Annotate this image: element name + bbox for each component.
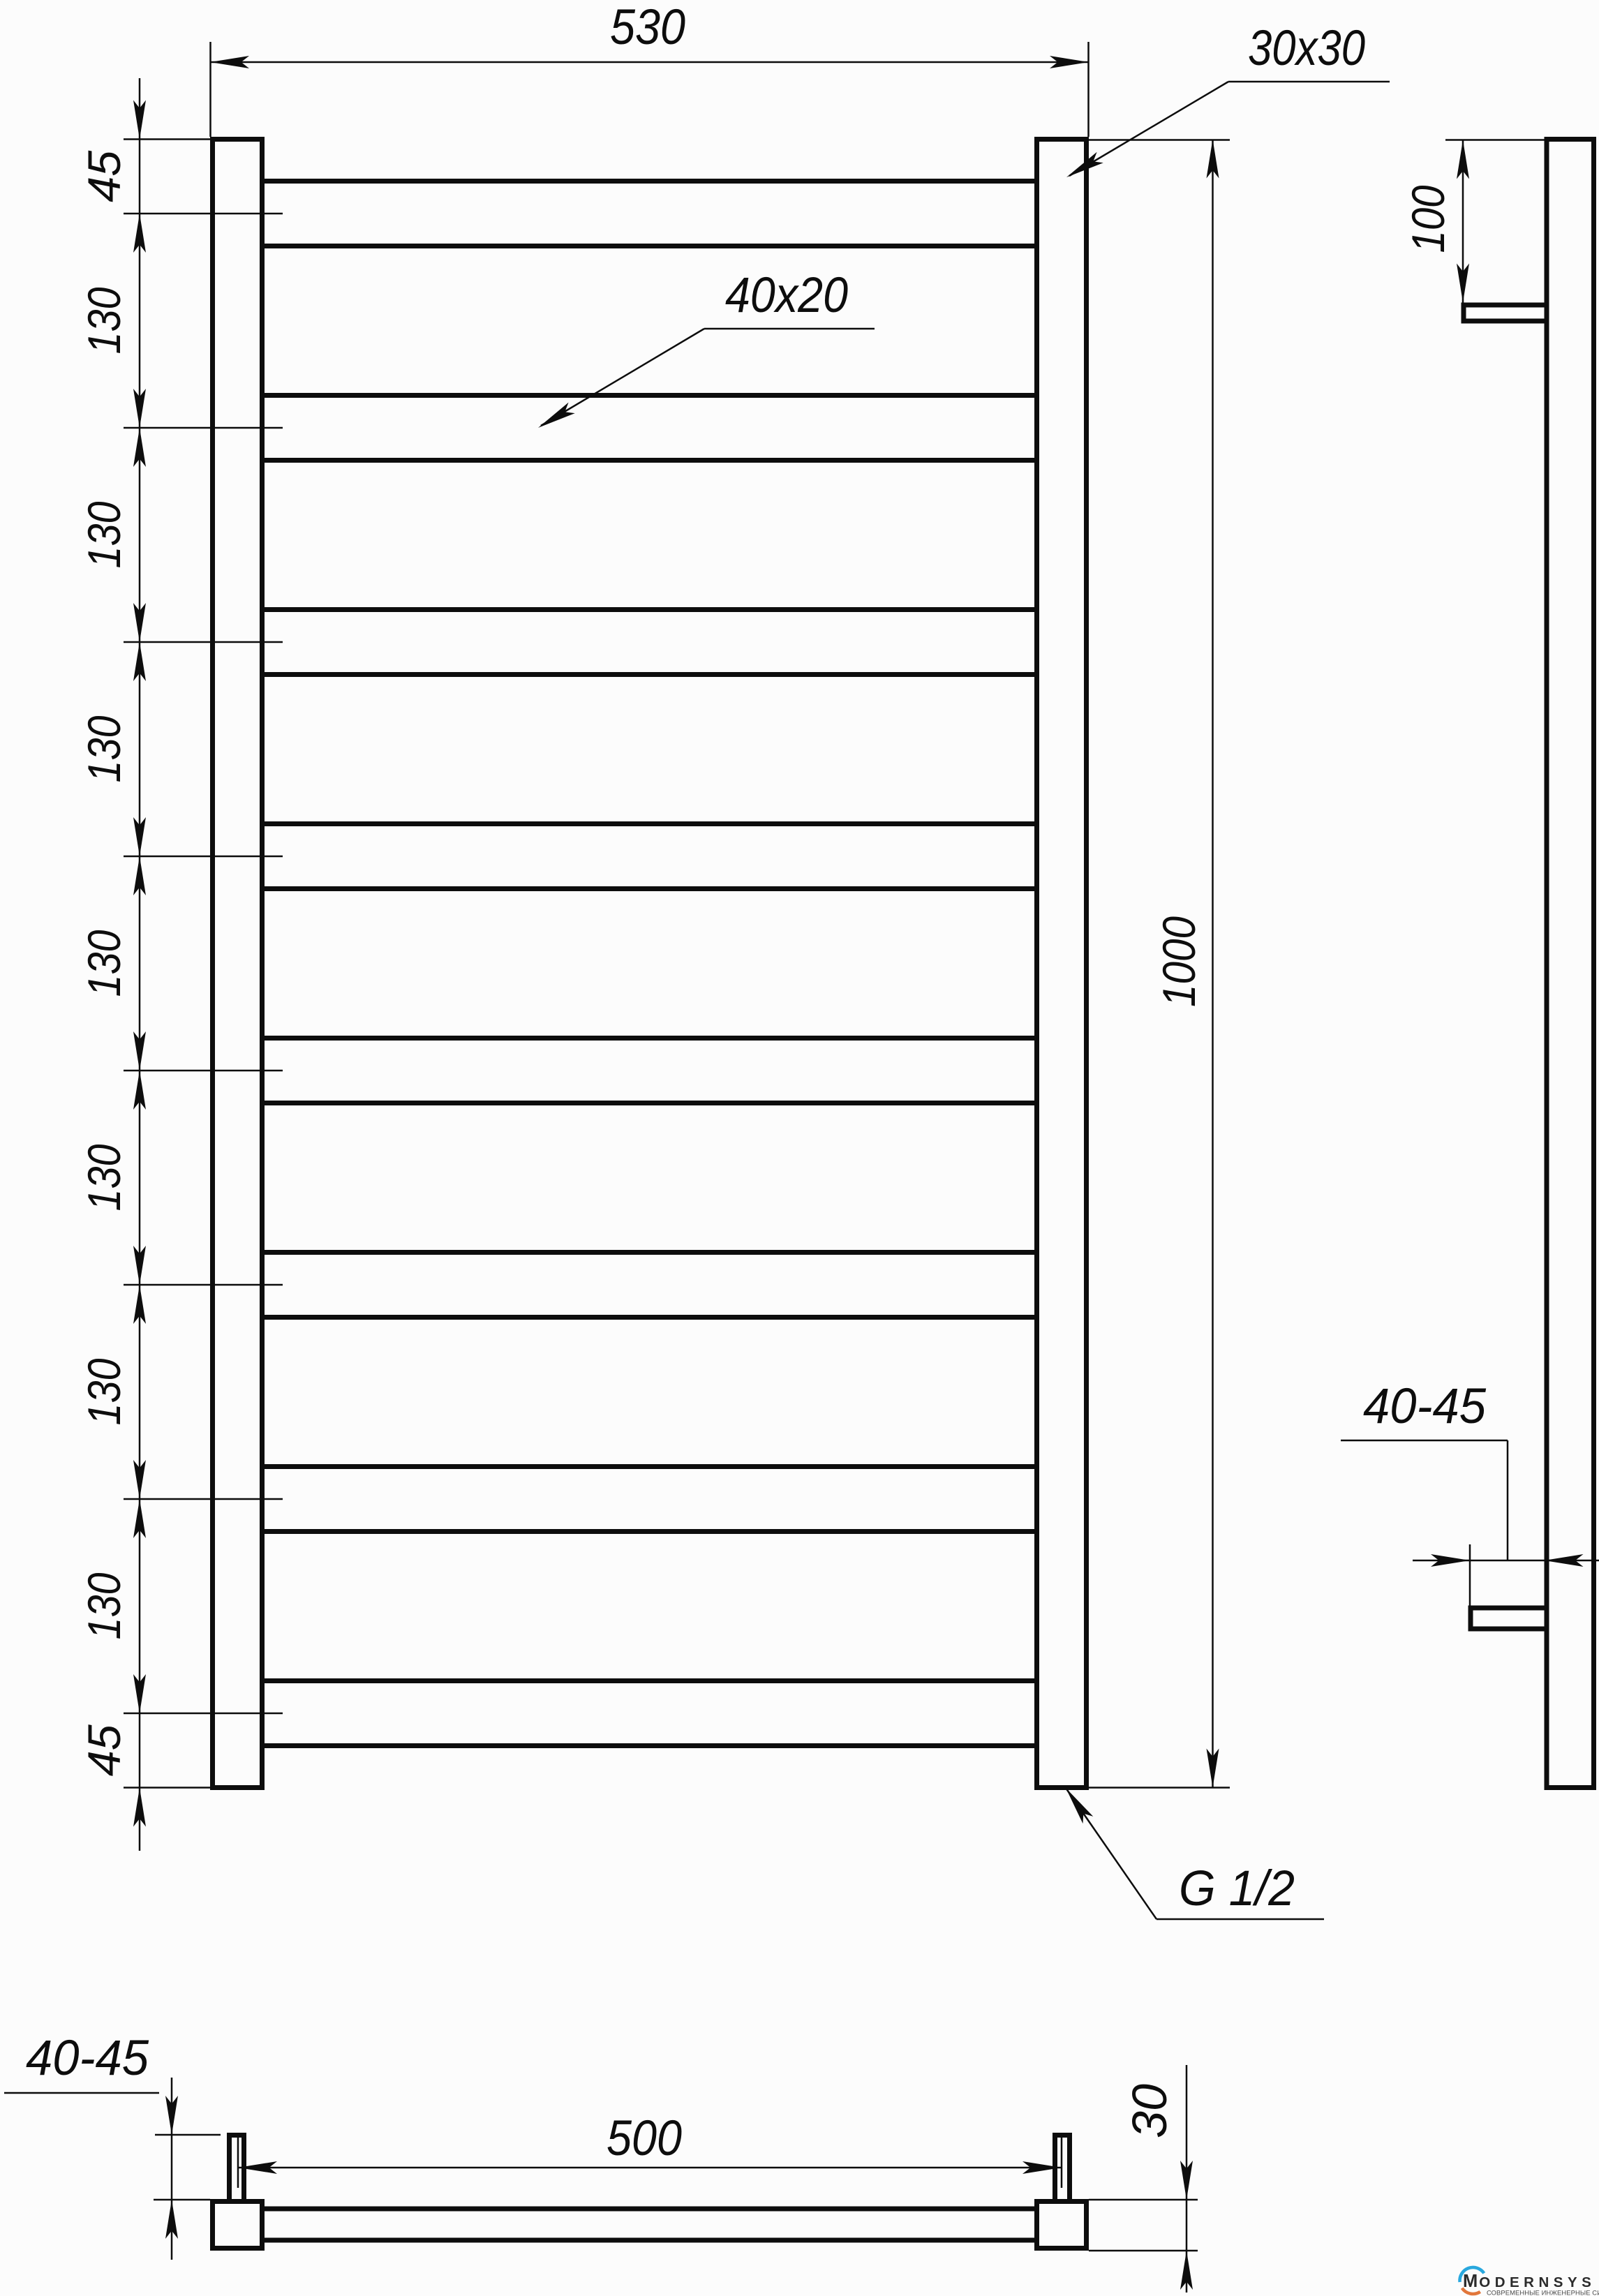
svg-text:40-45: 40-45 xyxy=(26,2031,149,2086)
svg-text:130: 130 xyxy=(78,930,130,997)
svg-text:130: 130 xyxy=(78,1358,130,1425)
svg-text:45: 45 xyxy=(78,150,130,202)
svg-text:30x30: 30x30 xyxy=(1248,21,1365,76)
svg-text:40-45: 40-45 xyxy=(1363,1379,1486,1434)
svg-text:130: 130 xyxy=(78,287,130,354)
svg-text:100: 100 xyxy=(1402,185,1454,253)
svg-text:1000: 1000 xyxy=(1153,916,1205,1007)
svg-text:30: 30 xyxy=(1122,2084,1177,2138)
svg-text:СОВРЕМЕННЫЕ ИНЖЕНЕРНЫЕ СИСТЕМЫ: СОВРЕМЕННЫЕ ИНЖЕНЕРНЫЕ СИСТЕМЫ xyxy=(1487,2289,1599,2296)
svg-text:130: 130 xyxy=(78,501,130,568)
svg-text:G 1/2: G 1/2 xyxy=(1179,1861,1295,1916)
svg-text:530: 530 xyxy=(610,0,685,55)
svg-text:45: 45 xyxy=(78,1724,130,1776)
svg-text:130: 130 xyxy=(78,1572,130,1639)
svg-text:130: 130 xyxy=(78,715,130,782)
svg-text:130: 130 xyxy=(78,1144,130,1211)
svg-text:500: 500 xyxy=(607,2111,682,2166)
svg-text:40x20: 40x20 xyxy=(725,268,848,323)
